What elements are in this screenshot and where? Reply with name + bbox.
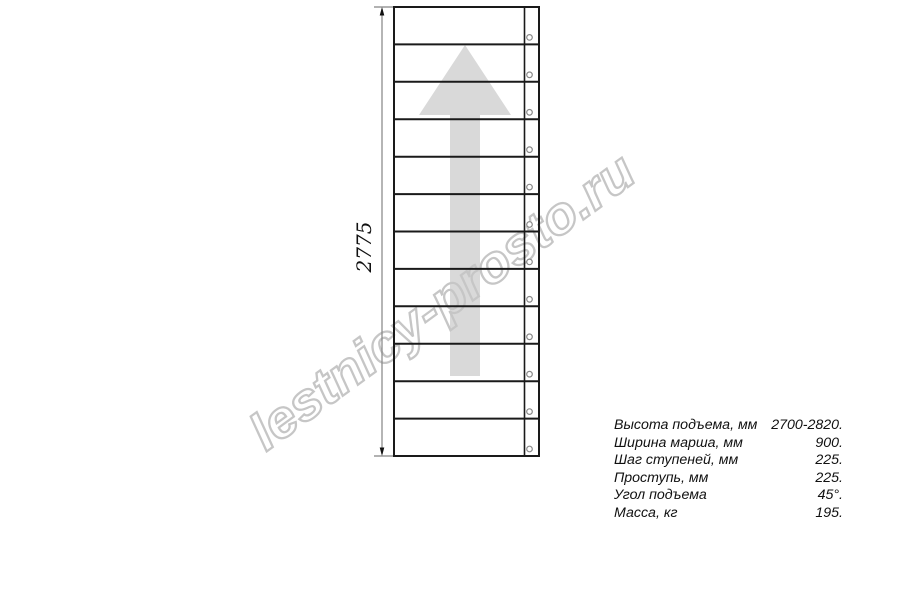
fastener-hole bbox=[527, 259, 533, 265]
spec-row: Угол подъема 45°. bbox=[614, 487, 843, 505]
spec-value: 225. bbox=[815, 452, 843, 470]
staircase-drawing-page: lestnicy-prosto.ru 2775 Высота подъема, … bbox=[0, 0, 900, 600]
dimension-arrowhead-bottom bbox=[380, 448, 385, 457]
spec-value: 45°. bbox=[818, 487, 843, 505]
spec-row: Высота подъема, мм 2700-2820. bbox=[614, 417, 843, 435]
fastener-hole bbox=[527, 222, 533, 228]
fastener-hole bbox=[527, 409, 533, 415]
fastener-hole bbox=[527, 334, 533, 340]
fastener-hole bbox=[527, 35, 533, 41]
dimension-label: 2775 bbox=[352, 222, 376, 274]
fastener-hole bbox=[527, 297, 533, 303]
spec-label: Ширина марша, мм bbox=[614, 435, 743, 453]
specs-table: Высота подъема, мм 2700-2820. Ширина мар… bbox=[614, 417, 843, 523]
spec-row: Масса, кг 195. bbox=[614, 505, 843, 523]
spec-value: 2700-2820. bbox=[771, 417, 843, 435]
watermark-text: lestnicy-prosto.ru bbox=[239, 142, 646, 462]
spec-row: Проступь, мм 225. bbox=[614, 470, 843, 488]
fastener-hole bbox=[527, 147, 533, 153]
spec-label: Высота подъема, мм bbox=[614, 417, 757, 435]
fastener-hole bbox=[527, 72, 533, 78]
spec-value: 195. bbox=[815, 505, 843, 523]
spec-value: 900. bbox=[815, 435, 843, 453]
spec-label: Угол подъема bbox=[614, 487, 707, 505]
fastener-hole bbox=[527, 371, 533, 377]
spec-value: 225. bbox=[815, 470, 843, 488]
fastener-hole bbox=[527, 110, 533, 116]
spec-label: Проступь, мм bbox=[614, 470, 708, 488]
fastener-hole bbox=[527, 446, 533, 452]
spec-row: Ширина марша, мм 900. bbox=[614, 435, 843, 453]
spec-label: Масса, кг bbox=[614, 505, 678, 523]
fastener-hole bbox=[527, 184, 533, 190]
spec-row: Шаг ступеней, мм 225. bbox=[614, 452, 843, 470]
spec-label: Шаг ступеней, мм bbox=[614, 452, 738, 470]
dimension-arrowhead-top bbox=[380, 7, 385, 16]
